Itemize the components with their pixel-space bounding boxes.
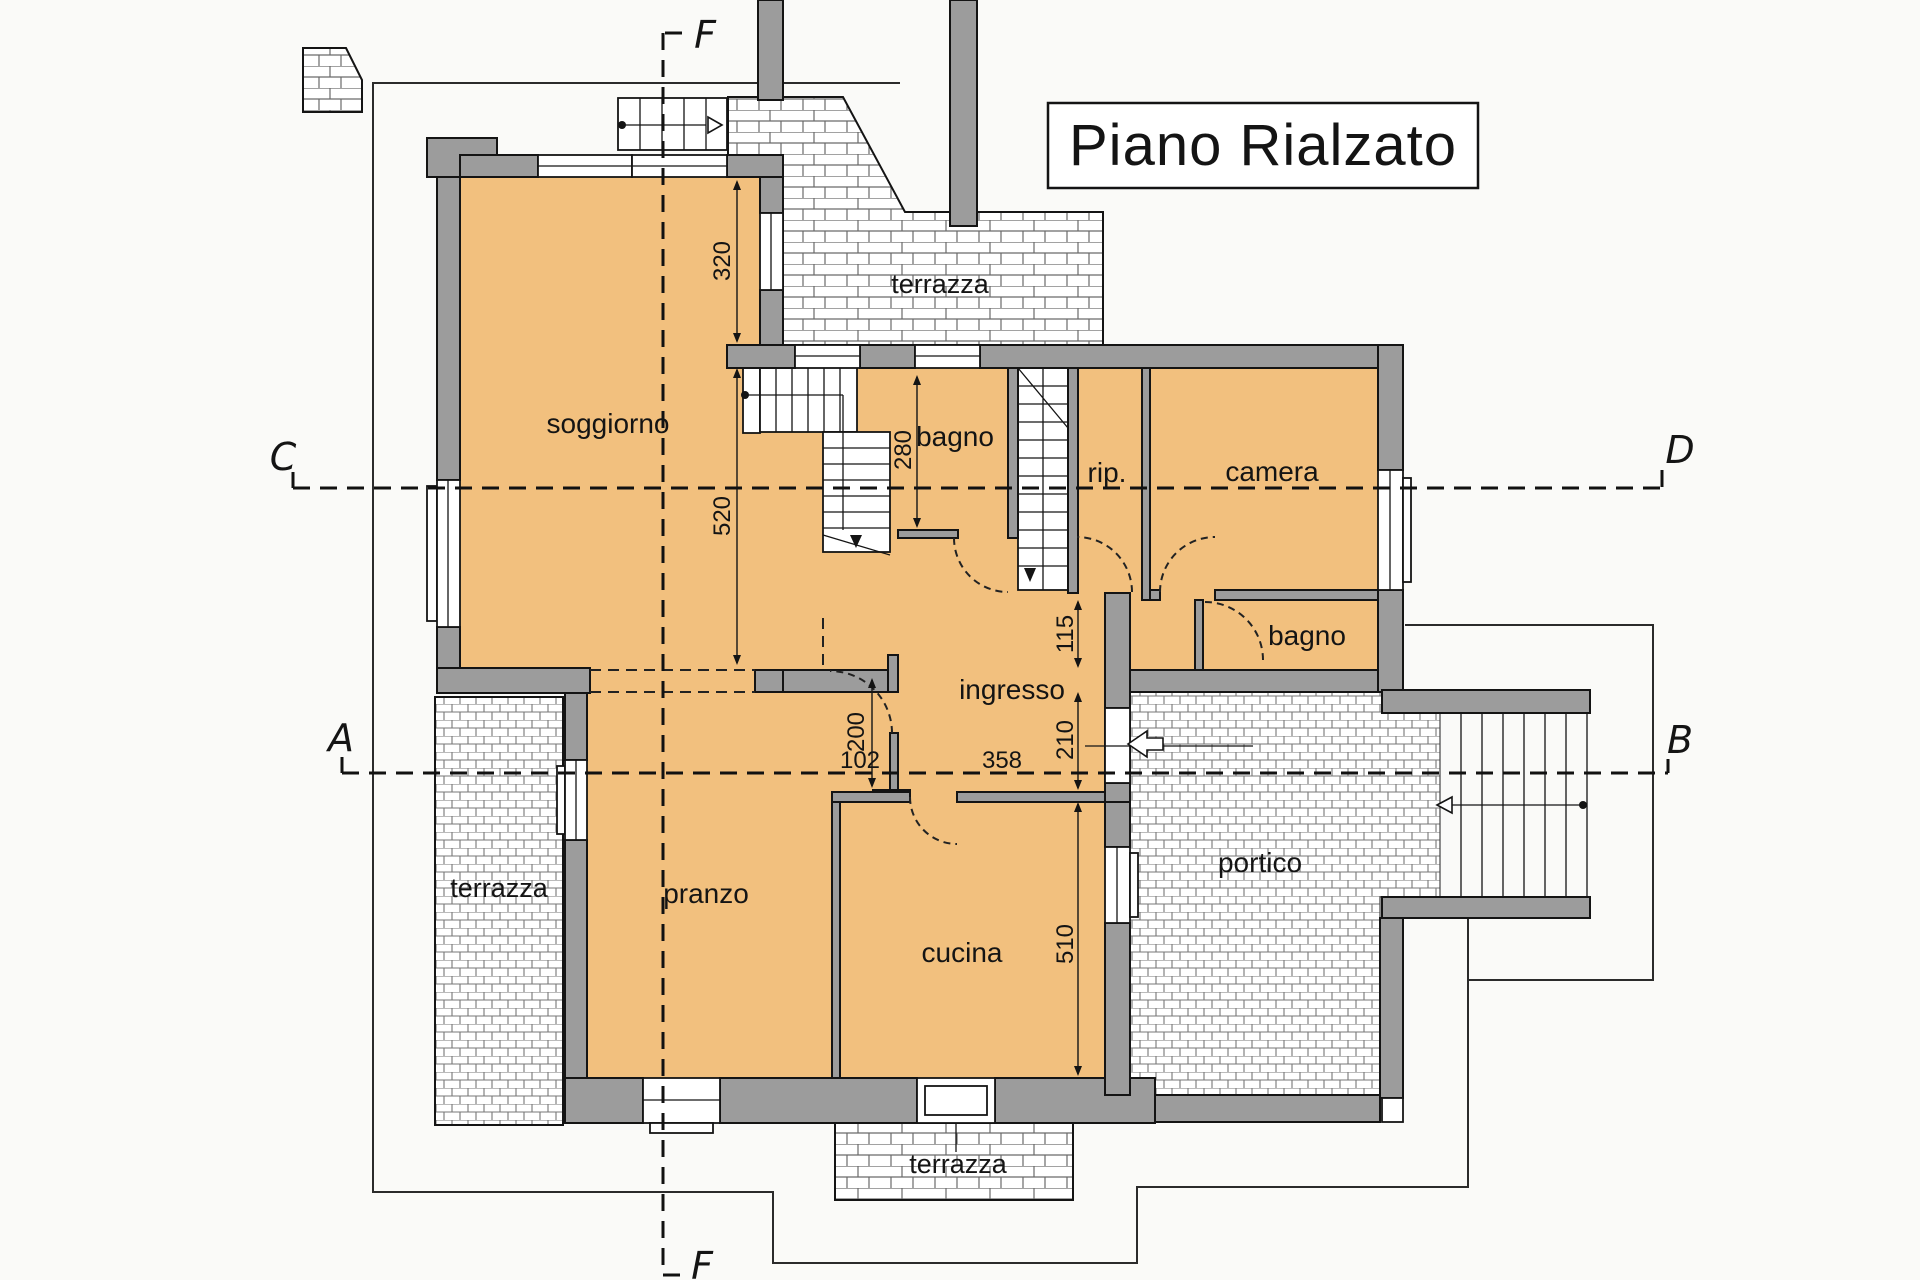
room-label-bagno-1: bagno	[916, 421, 994, 452]
door-terrace-bottom	[917, 1078, 995, 1123]
room-label-terrazza-top: terrazza	[891, 269, 990, 299]
terrace-left-hatch	[435, 697, 563, 1125]
window	[643, 1078, 720, 1133]
dim-510: 510	[1052, 924, 1079, 964]
room-label-terrazza-bottom: terrazza	[909, 1149, 1008, 1179]
dim-102: 102	[840, 747, 880, 774]
door-terrace-top	[795, 345, 860, 368]
stair-internal-down	[1018, 368, 1068, 590]
dim-115: 115	[1052, 615, 1079, 653]
section-label-c: C	[270, 435, 297, 479]
external-stair-right	[1437, 713, 1587, 897]
window	[427, 480, 460, 627]
room-label-soggiorno: soggiorno	[547, 408, 670, 439]
dim-320: 320	[709, 241, 736, 281]
room-label-ingresso: ingresso	[959, 674, 1065, 705]
title-box: Piano Rialzato	[1048, 103, 1478, 188]
window	[760, 213, 783, 290]
dim-358: 358	[982, 747, 1022, 774]
section-label-a: A	[325, 716, 354, 760]
room-label-camera: camera	[1225, 456, 1319, 487]
room-label-rip: rip.	[1088, 457, 1127, 488]
window	[1105, 847, 1138, 923]
dim-210: 210	[1052, 720, 1079, 760]
section-label-f-top: F	[694, 13, 717, 57]
window	[915, 345, 980, 368]
page-title: Piano Rialzato	[1069, 113, 1457, 178]
section-label-d: D	[1665, 428, 1694, 472]
dim-520: 520	[709, 496, 736, 536]
portico-pillar	[1382, 1098, 1403, 1122]
section-label-f-bottom: F	[691, 1244, 714, 1280]
section-label-b: B	[1667, 718, 1693, 762]
window	[538, 155, 632, 177]
floor-plan-page: F F C D A B 320 520 280 115 210 200 102 …	[0, 0, 1920, 1280]
neighbor-structure	[303, 48, 362, 112]
dim-280: 280	[890, 430, 917, 470]
room-label-cucina: cucina	[922, 937, 1003, 968]
entry-steps-top	[618, 98, 727, 150]
room-label-bagno-2: bagno	[1268, 620, 1346, 651]
floor-plan-svg: F F C D A B 320 520 280 115 210 200 102 …	[0, 0, 1920, 1280]
room-label-pranzo: pranzo	[663, 878, 749, 909]
room-label-portico: portico	[1218, 847, 1302, 878]
room-label-terrazza-left: terrazza	[450, 873, 549, 903]
door-top-entry	[632, 155, 727, 177]
